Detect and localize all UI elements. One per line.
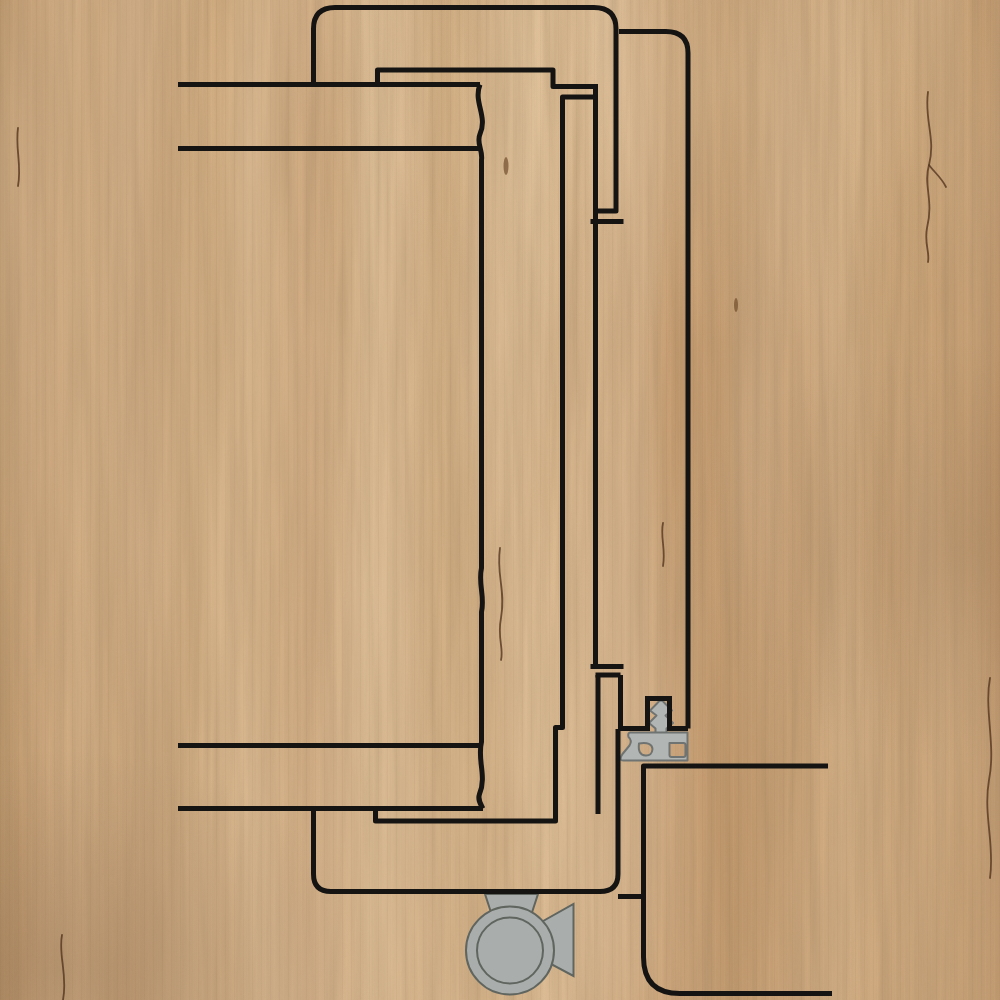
hinge-assembly: [466, 894, 574, 995]
leaf-break-edge: [478, 85, 483, 809]
hinge-knuckle: [466, 907, 554, 995]
screenshot-root: [0, 0, 1000, 1000]
seal-lip-body: [621, 733, 688, 761]
leaf-rebate-step-bottom: [376, 97, 596, 821]
casing-outer-outline: [619, 32, 688, 729]
section-drawing: [0, 0, 1000, 1000]
frame-foot-outer: [644, 766, 833, 994]
casing-inner-outline: [314, 8, 617, 212]
profile-outlines: [178, 8, 832, 994]
